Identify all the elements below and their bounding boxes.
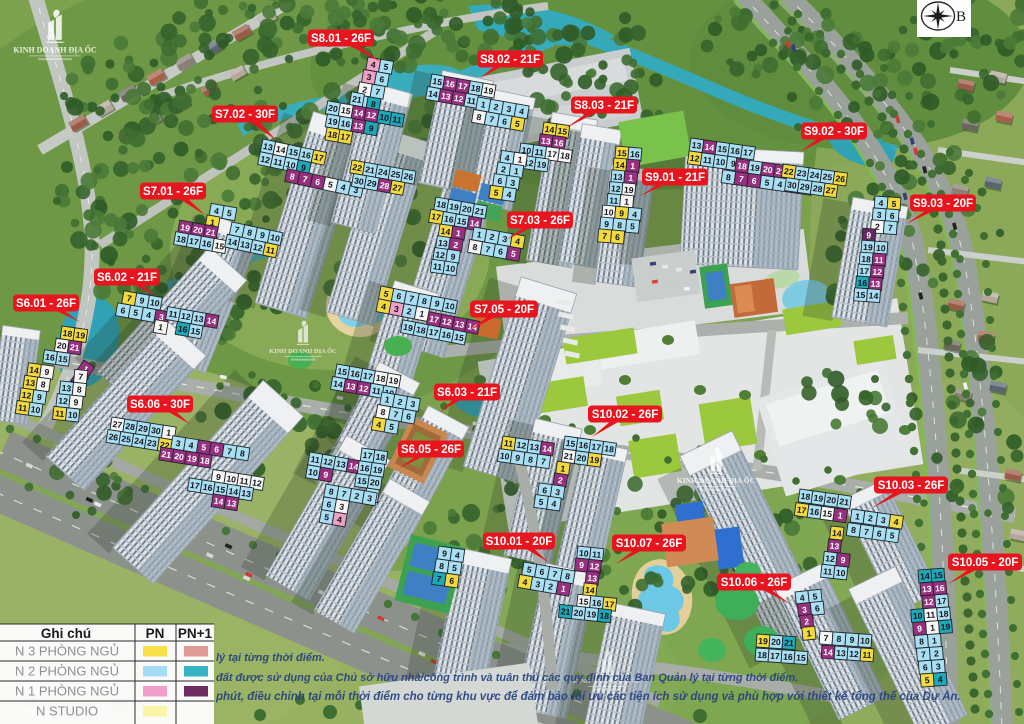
svg-text:S9.02 - 30F: S9.02 - 30F <box>804 126 864 138</box>
svg-text:12: 12 <box>849 649 859 660</box>
svg-text:14: 14 <box>868 290 878 301</box>
svg-text:14: 14 <box>332 378 343 390</box>
svg-text:S10.06 - 26F: S10.06 - 26F <box>721 577 787 589</box>
svg-text:27: 27 <box>112 419 123 430</box>
svg-text:lý tại từng thời điểm.: lý tại từng thời điểm. <box>216 652 325 664</box>
svg-text:20: 20 <box>56 340 67 351</box>
svg-text:5: 5 <box>924 675 930 685</box>
svg-text:3: 3 <box>876 210 882 220</box>
svg-text:20: 20 <box>826 494 837 505</box>
svg-text:16: 16 <box>730 145 741 156</box>
svg-text:14: 14 <box>427 88 438 100</box>
svg-text:10: 10 <box>499 450 510 461</box>
svg-text:21: 21 <box>205 227 216 239</box>
svg-text:14: 14 <box>228 486 239 497</box>
svg-text:21: 21 <box>839 496 850 507</box>
svg-text:11: 11 <box>823 566 833 577</box>
svg-text:16: 16 <box>630 149 641 160</box>
svg-text:S10.01 - 20F: S10.01 - 20F <box>486 536 552 548</box>
svg-text:S10.07 - 26F: S10.07 - 26F <box>616 538 682 550</box>
svg-text:18: 18 <box>560 150 571 161</box>
svg-text:12: 12 <box>453 93 464 105</box>
svg-text:14: 14 <box>831 528 842 539</box>
svg-text:16: 16 <box>349 368 360 380</box>
svg-text:17: 17 <box>796 504 807 515</box>
svg-text:10: 10 <box>307 467 318 479</box>
svg-text:11: 11 <box>55 408 65 419</box>
svg-text:18: 18 <box>436 199 447 211</box>
svg-text:16: 16 <box>177 323 188 335</box>
svg-text:3: 3 <box>936 661 942 671</box>
svg-text:16: 16 <box>935 583 945 594</box>
svg-text:18: 18 <box>861 254 871 265</box>
svg-text:14: 14 <box>542 443 553 454</box>
svg-text:29: 29 <box>138 423 149 434</box>
svg-text:11: 11 <box>18 402 29 413</box>
svg-text:11: 11 <box>239 475 250 486</box>
svg-text:20: 20 <box>576 453 587 464</box>
svg-text:N 1 PHÒNG NGỦ: N 1 PHÒNG NGỦ <box>15 684 119 699</box>
svg-text:19: 19 <box>180 222 191 234</box>
svg-text:S10.02 - 26F: S10.02 - 26F <box>592 409 658 421</box>
svg-text:17: 17 <box>340 131 351 143</box>
svg-text:12: 12 <box>21 390 32 401</box>
svg-text:S8.02 - 21F: S8.02 - 21F <box>480 54 540 66</box>
svg-text:14: 14 <box>206 315 217 327</box>
svg-text:S7.01 - 26F: S7.01 - 26F <box>143 186 203 198</box>
svg-text:15: 15 <box>933 570 943 581</box>
svg-text:19: 19 <box>813 493 824 504</box>
svg-text:24: 24 <box>809 170 820 181</box>
svg-text:16: 16 <box>444 78 455 90</box>
svg-text:23: 23 <box>796 168 807 179</box>
svg-text:20: 20 <box>762 164 773 175</box>
svg-text:12: 12 <box>251 477 262 488</box>
svg-text:14: 14 <box>920 571 930 582</box>
svg-text:14: 14 <box>440 226 451 237</box>
svg-text:15: 15 <box>557 126 568 137</box>
svg-text:18: 18 <box>375 373 386 385</box>
svg-text:10: 10 <box>445 263 456 274</box>
svg-text:13: 13 <box>922 584 932 595</box>
svg-text:15: 15 <box>578 596 589 607</box>
svg-text:10: 10 <box>604 207 615 218</box>
svg-text:15: 15 <box>717 143 728 154</box>
svg-text:19: 19 <box>75 330 86 341</box>
svg-text:KINH DOANH ĐỊA ỐC: KINH DOANH ĐỊA ỐC <box>13 45 97 55</box>
svg-text:19: 19 <box>586 609 597 620</box>
svg-text:đất được sử dụng của Chủ sở hữ: đất được sử dụng của Chủ sở hữu nhà/công… <box>216 672 798 684</box>
svg-text:11: 11 <box>862 650 872 661</box>
svg-text:28: 28 <box>379 180 390 192</box>
svg-text:21: 21 <box>784 638 794 649</box>
svg-text:20: 20 <box>174 451 185 462</box>
svg-text:26: 26 <box>835 173 846 184</box>
svg-text:19: 19 <box>186 453 197 464</box>
svg-text:11: 11 <box>432 261 443 272</box>
svg-text:S8.01 - 26F: S8.01 - 26F <box>311 33 371 45</box>
svg-text:18: 18 <box>939 609 949 620</box>
svg-text:13: 13 <box>345 381 356 393</box>
svg-text:16: 16 <box>553 137 564 148</box>
svg-text:25: 25 <box>121 433 132 444</box>
svg-text:21: 21 <box>351 94 362 106</box>
svg-text:29: 29 <box>799 181 810 192</box>
svg-text:N 2 PHÒNG NGỦ: N 2 PHÒNG NGỦ <box>15 664 119 679</box>
svg-text:20: 20 <box>573 608 584 619</box>
svg-text:S6.02 - 21F: S6.02 - 21F <box>97 272 157 284</box>
svg-text:6: 6 <box>889 211 895 221</box>
svg-text:S6.03 - 21F: S6.03 - 21F <box>437 387 497 399</box>
svg-text:29: 29 <box>366 178 377 190</box>
svg-text:15: 15 <box>215 484 226 495</box>
svg-text:16: 16 <box>359 463 370 474</box>
svg-text:23: 23 <box>146 437 157 448</box>
svg-text:13: 13 <box>437 238 448 249</box>
svg-text:15: 15 <box>356 475 367 486</box>
svg-text:21: 21 <box>560 606 571 617</box>
svg-text:16: 16 <box>201 238 212 250</box>
svg-text:10: 10 <box>913 610 923 621</box>
svg-text:17: 17 <box>547 148 558 159</box>
svg-text:12: 12 <box>825 553 836 564</box>
svg-text:19: 19 <box>483 85 494 97</box>
svg-text:26: 26 <box>108 431 119 442</box>
svg-text:B: B <box>956 9 966 25</box>
svg-text:18: 18 <box>599 610 610 621</box>
svg-text:12: 12 <box>689 153 700 164</box>
svg-text:18: 18 <box>375 452 386 463</box>
svg-text:13: 13 <box>61 383 72 394</box>
svg-text:11: 11 <box>926 610 936 621</box>
svg-text:17: 17 <box>362 370 373 382</box>
svg-text:15: 15 <box>340 105 351 117</box>
svg-text:19: 19 <box>536 159 547 170</box>
svg-text:12: 12 <box>58 395 69 406</box>
svg-text:phút, điều chỉnh tại mỗi thời: phút, điều chỉnh tại mỗi thời điểm cho t… <box>215 690 961 703</box>
svg-text:13: 13 <box>193 313 204 325</box>
svg-text:20: 20 <box>192 224 203 236</box>
svg-text:20: 20 <box>327 103 338 115</box>
svg-text:S6.06 - 30F: S6.06 - 30F <box>130 399 190 411</box>
svg-text:21: 21 <box>161 449 172 460</box>
svg-text:16: 16 <box>340 118 351 130</box>
svg-text:22: 22 <box>783 166 794 177</box>
svg-text:8: 8 <box>919 636 925 646</box>
svg-text:19: 19 <box>863 242 873 253</box>
svg-text:25: 25 <box>822 171 833 182</box>
svg-text:17: 17 <box>591 441 602 452</box>
svg-text:13: 13 <box>353 120 364 132</box>
svg-text:17: 17 <box>604 599 615 610</box>
svg-text:10: 10 <box>149 297 160 309</box>
svg-text:17: 17 <box>189 480 200 491</box>
svg-text:14: 14 <box>544 124 555 135</box>
svg-text:13: 13 <box>25 377 36 388</box>
svg-text:30: 30 <box>353 175 364 187</box>
svg-text:17: 17 <box>188 236 199 248</box>
svg-text:11: 11 <box>702 155 713 166</box>
svg-text:16: 16 <box>809 506 820 517</box>
svg-text:5: 5 <box>891 199 897 209</box>
svg-text:S9.01 - 21F: S9.01 - 21F <box>645 172 705 184</box>
svg-text:13: 13 <box>587 573 598 584</box>
svg-text:16: 16 <box>578 440 589 451</box>
svg-text:24: 24 <box>377 166 388 178</box>
svg-text:16: 16 <box>202 482 213 493</box>
svg-text:12: 12 <box>516 440 527 451</box>
svg-text:15: 15 <box>337 366 348 378</box>
svg-text:9: 9 <box>849 635 855 645</box>
svg-text:6: 6 <box>923 662 929 672</box>
svg-text:27: 27 <box>825 185 836 196</box>
svg-text:24: 24 <box>134 435 145 446</box>
svg-text:20: 20 <box>771 637 781 648</box>
svg-text:30: 30 <box>150 425 161 436</box>
svg-text:10: 10 <box>860 635 870 646</box>
svg-text:11: 11 <box>592 549 602 560</box>
svg-text:19: 19 <box>327 116 338 128</box>
svg-text:21: 21 <box>69 342 80 353</box>
svg-text:19: 19 <box>758 636 768 647</box>
svg-text:18: 18 <box>757 650 767 661</box>
svg-text:13: 13 <box>613 171 624 182</box>
svg-text:10: 10 <box>876 243 886 254</box>
svg-text:S7.02 - 30F: S7.02 - 30F <box>215 109 275 121</box>
svg-text:11: 11 <box>609 195 619 206</box>
svg-text:14: 14 <box>29 365 40 376</box>
svg-text:17: 17 <box>937 596 947 607</box>
svg-text:KINH DOANH ĐỊA ỐC: KINH DOANH ĐỊA ỐC <box>269 347 337 355</box>
svg-text:19: 19 <box>372 464 383 475</box>
svg-text:13: 13 <box>241 488 252 499</box>
svg-text:18: 18 <box>62 328 73 339</box>
svg-text:13: 13 <box>226 498 237 509</box>
svg-text:9: 9 <box>917 623 923 633</box>
svg-text:S10.03 - 26F: S10.03 - 26F <box>878 480 944 492</box>
svg-text:16: 16 <box>443 213 454 225</box>
svg-text:S7.05 - 20F: S7.05 - 20F <box>474 304 534 316</box>
svg-text:1: 1 <box>932 635 938 645</box>
svg-text:7: 7 <box>921 649 927 659</box>
svg-text:N 3 PHÒNG NGỦ: N 3 PHÒNG NGỦ <box>15 644 119 659</box>
svg-text:27: 27 <box>392 182 403 194</box>
svg-text:18: 18 <box>176 234 187 246</box>
svg-text:19: 19 <box>750 162 761 173</box>
svg-text:14: 14 <box>823 647 833 658</box>
svg-text:N STUDIO: N STUDIO <box>36 704 98 719</box>
svg-text:16: 16 <box>591 597 602 608</box>
svg-text:18: 18 <box>470 83 481 95</box>
svg-text:19: 19 <box>388 375 399 387</box>
svg-text:10: 10 <box>835 567 846 578</box>
svg-text:1: 1 <box>930 623 936 633</box>
svg-text:17: 17 <box>770 651 780 662</box>
svg-text:16: 16 <box>857 278 867 289</box>
svg-text:4: 4 <box>937 674 943 684</box>
svg-text:12: 12 <box>611 183 622 194</box>
svg-text:14: 14 <box>213 496 224 507</box>
svg-text:10: 10 <box>578 548 589 559</box>
svg-text:Ghi chú: Ghi chú <box>41 626 91 641</box>
svg-text:13: 13 <box>836 648 846 659</box>
svg-text:16: 16 <box>45 352 56 363</box>
svg-text:19: 19 <box>624 184 635 195</box>
svg-text:21: 21 <box>364 164 375 176</box>
svg-text:15: 15 <box>57 353 68 364</box>
svg-text:17: 17 <box>457 80 468 92</box>
svg-text:13: 13 <box>870 279 880 290</box>
svg-text:21: 21 <box>474 206 485 218</box>
svg-text:18: 18 <box>327 129 338 141</box>
svg-text:19: 19 <box>940 621 950 632</box>
svg-text:7: 7 <box>888 223 894 233</box>
svg-text:12: 12 <box>872 267 882 278</box>
svg-text:KINH DOANH ĐỊA ỐC: KINH DOANH ĐỊA ỐC <box>677 475 755 485</box>
svg-text:16: 16 <box>783 651 793 662</box>
svg-text:17: 17 <box>859 266 869 277</box>
svg-text:15: 15 <box>190 326 201 338</box>
svg-text:11: 11 <box>874 255 884 266</box>
svg-text:14: 14 <box>353 107 364 119</box>
svg-text:15: 15 <box>855 290 865 301</box>
svg-text:PN+1: PN+1 <box>178 626 213 641</box>
svg-text:13: 13 <box>691 140 702 151</box>
svg-text:11: 11 <box>503 438 514 449</box>
svg-text:19: 19 <box>448 201 459 213</box>
svg-text:30: 30 <box>786 179 797 190</box>
svg-text:15: 15 <box>822 508 833 519</box>
svg-text:15: 15 <box>565 438 576 449</box>
svg-text:15: 15 <box>456 216 467 228</box>
svg-text:15: 15 <box>432 76 443 88</box>
svg-text:18: 18 <box>737 160 748 171</box>
svg-text:10: 10 <box>30 404 41 415</box>
svg-text:S8.03 - 21F: S8.03 - 21F <box>574 100 634 112</box>
svg-text:S7.03 - 26F: S7.03 - 26F <box>510 215 570 227</box>
svg-text:10: 10 <box>67 409 78 420</box>
svg-text:9: 9 <box>866 230 872 240</box>
svg-text:12: 12 <box>924 597 934 608</box>
svg-text:12: 12 <box>366 109 377 121</box>
svg-text:S10.05 - 20F: S10.05 - 20F <box>952 557 1018 569</box>
svg-text:11: 11 <box>534 147 545 158</box>
svg-text:18: 18 <box>199 455 210 466</box>
svg-text:19: 19 <box>589 454 600 465</box>
svg-text:S6.01 - 26F: S6.01 - 26F <box>16 298 76 310</box>
svg-text:18: 18 <box>800 491 811 502</box>
svg-text:17: 17 <box>430 211 441 223</box>
svg-text:12: 12 <box>435 249 446 260</box>
svg-text:7: 7 <box>823 633 829 643</box>
svg-text:20: 20 <box>461 203 472 215</box>
svg-text:14: 14 <box>585 585 596 596</box>
svg-text:20: 20 <box>369 477 380 488</box>
svg-text:26: 26 <box>403 171 414 183</box>
svg-text:4: 4 <box>878 198 884 208</box>
svg-text:14: 14 <box>704 142 715 153</box>
svg-text:17: 17 <box>743 147 754 158</box>
svg-text:10: 10 <box>379 112 390 124</box>
svg-text:S6.05 - 26F: S6.05 - 26F <box>401 444 461 456</box>
svg-text:8: 8 <box>836 634 842 644</box>
svg-text:28: 28 <box>125 421 136 432</box>
svg-text:15: 15 <box>796 652 806 663</box>
svg-text:13: 13 <box>440 91 451 103</box>
svg-text:2: 2 <box>934 648 940 658</box>
svg-text:13: 13 <box>335 458 346 470</box>
svg-text:22: 22 <box>352 162 363 174</box>
svg-text:15: 15 <box>214 240 225 252</box>
svg-text:S9.03 - 20F: S9.03 - 20F <box>913 198 973 210</box>
svg-text:17: 17 <box>362 450 373 461</box>
svg-text:10: 10 <box>715 156 726 167</box>
svg-text:15: 15 <box>617 148 628 159</box>
svg-text:13: 13 <box>540 135 551 146</box>
svg-text:21: 21 <box>563 451 574 462</box>
svg-text:12: 12 <box>589 561 600 572</box>
svg-text:13: 13 <box>529 441 540 452</box>
svg-text:12: 12 <box>322 456 333 468</box>
svg-text:12: 12 <box>180 311 191 323</box>
svg-text:14: 14 <box>615 160 626 171</box>
svg-text:28: 28 <box>812 183 823 194</box>
svg-text:13: 13 <box>829 541 840 552</box>
svg-text:12: 12 <box>358 383 369 395</box>
svg-text:10: 10 <box>226 473 237 484</box>
svg-text:25: 25 <box>390 169 401 181</box>
svg-text:PN: PN <box>146 626 165 641</box>
svg-text:18: 18 <box>604 443 615 454</box>
